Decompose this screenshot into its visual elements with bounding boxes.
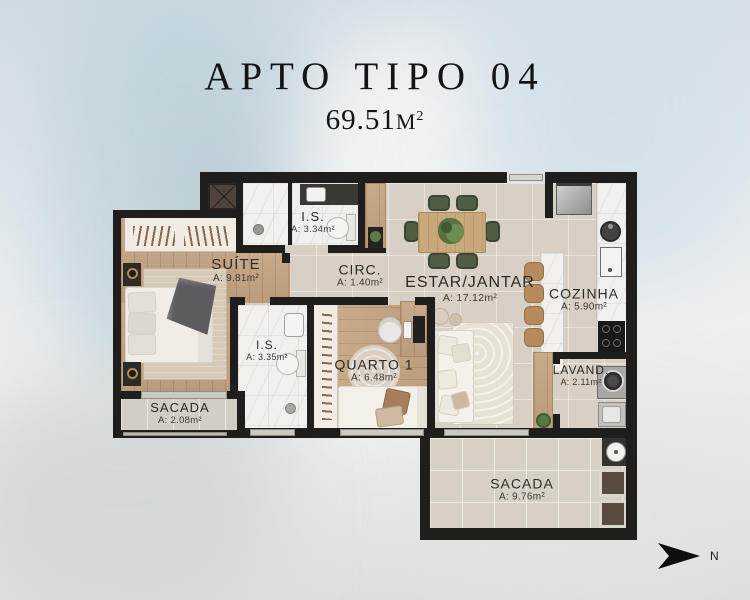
entry-door <box>509 174 543 181</box>
room-area: A: 5.90m² <box>549 302 619 313</box>
wall <box>200 172 507 183</box>
room-area: A: 2.08m² <box>150 415 209 426</box>
north-label: N <box>710 549 719 563</box>
kitchen-faucet-icon <box>608 224 613 229</box>
page: APTO TIPO 04 69.51M2 <box>0 0 750 600</box>
area-value: 69.51 <box>326 104 396 136</box>
room-area: A: 2.11m² <box>553 377 610 387</box>
room-name: I.S. <box>291 209 335 224</box>
wall <box>420 428 430 540</box>
wall <box>282 253 290 263</box>
monitor-icon <box>413 316 425 343</box>
room-area: A: 6.48m² <box>334 373 413 384</box>
fridge-icon <box>556 183 592 215</box>
room-name: COZINHA <box>549 286 619 302</box>
room-name: ESTAR/JANTAR <box>405 274 535 292</box>
plant-icon <box>370 231 381 242</box>
wall <box>553 352 626 359</box>
label-lavand: LAVAND. A: 2.11m² <box>553 363 610 387</box>
area-title: 69.51M2 <box>0 104 750 137</box>
bbq-drain-icon <box>614 450 618 454</box>
wall <box>328 245 365 253</box>
window-is2 <box>250 429 295 436</box>
wardrobe-hangers-icon <box>322 312 332 420</box>
pouf <box>449 313 462 326</box>
suite-lamp-icon <box>127 268 138 279</box>
suite-lamp-icon <box>127 368 138 379</box>
window-sacada-rail <box>123 432 227 436</box>
quarto-pillow <box>375 405 404 428</box>
sofa-pillow <box>451 343 472 364</box>
label-quarto1: QUARTO 1 A: 6.48m² <box>334 357 413 384</box>
suite-pillow <box>127 291 156 313</box>
plant-icon <box>536 413 551 428</box>
oven-knob-icon <box>608 268 612 272</box>
label-sacada-1: SACADA A: 2.08m² <box>150 400 209 426</box>
room-area: A: 9.76m² <box>490 492 554 503</box>
dining-chair <box>456 253 478 269</box>
wall <box>363 248 386 253</box>
room-name: I.S. <box>246 338 288 352</box>
label-is2: I.S. A: 3.35m² <box>246 338 288 362</box>
wall <box>626 172 637 540</box>
island-stool <box>524 306 544 325</box>
wall <box>427 297 435 428</box>
window-suite-sacada <box>141 391 227 399</box>
room-name: QUARTO 1 <box>334 357 413 373</box>
window-quarto <box>340 429 424 436</box>
floor-is1-shower <box>243 183 288 245</box>
dining-chair <box>485 221 500 242</box>
area-unit: M <box>396 109 417 134</box>
keyboard-icon <box>403 321 412 339</box>
grill-cabinet <box>599 469 627 497</box>
grill-cabinet <box>599 500 627 528</box>
sliding-door-estar <box>444 429 529 436</box>
wall <box>420 528 637 540</box>
laundry-basin-icon <box>602 406 621 423</box>
room-name: CIRC. <box>337 262 383 278</box>
label-sacada-2: SACADA A: 9.76m² <box>490 476 554 503</box>
shower-head-icon <box>253 224 264 235</box>
wall <box>236 183 243 253</box>
burner-icon <box>613 339 621 347</box>
closet-hangers-icon <box>184 226 228 246</box>
burner-icon <box>602 339 610 347</box>
wall <box>121 391 141 399</box>
dining-chair <box>456 195 478 211</box>
label-is1: I.S. A: 3.34m² <box>291 209 335 235</box>
wall <box>270 297 315 305</box>
suite-pillow <box>128 334 157 356</box>
wall <box>230 297 238 398</box>
room-area: A: 3.34m² <box>291 224 335 235</box>
is1-sink-icon <box>306 187 326 202</box>
wall <box>113 210 121 438</box>
area-sup: 2 <box>416 109 424 124</box>
room-area: A: 1.40m² <box>337 278 383 289</box>
room-area: A: 17.12m² <box>405 292 535 304</box>
room-name: LAVAND. <box>553 363 610 377</box>
desk-chair <box>378 317 402 343</box>
wall <box>237 391 245 438</box>
label-estar: ESTAR/JANTAR A: 17.12m² <box>405 274 535 304</box>
label-suite: SUÍTE A: 9.81m² <box>211 256 260 284</box>
wall <box>545 172 637 183</box>
room-name: SUÍTE <box>211 256 260 273</box>
dining-chair <box>428 253 450 269</box>
page-title: APTO TIPO 04 <box>0 54 750 99</box>
shower-drain-icon <box>285 403 296 414</box>
burner-icon <box>613 325 621 333</box>
wall <box>230 297 245 305</box>
room-name: SACADA <box>490 476 554 492</box>
dining-chair <box>404 221 419 242</box>
label-circ: CIRC. A: 1.40m² <box>337 262 383 289</box>
closet-hangers-icon <box>133 226 175 246</box>
burner-icon <box>602 325 610 333</box>
plant-icon <box>441 222 452 233</box>
wall <box>236 245 285 253</box>
is2-sink-icon <box>284 313 304 337</box>
wall <box>307 305 314 428</box>
wall <box>113 210 240 218</box>
label-cozinha: COZINHA A: 5.90m² <box>549 286 619 313</box>
wall <box>553 414 560 430</box>
north-arrow-icon <box>658 542 700 570</box>
room-name: SACADA <box>150 400 209 415</box>
oven-icon <box>600 247 622 277</box>
wall <box>227 391 237 399</box>
island-stool <box>524 328 544 347</box>
wall <box>315 297 388 305</box>
suite-pillow <box>128 313 157 335</box>
room-area: A: 3.35m² <box>246 352 288 362</box>
room-area: A: 9.81m² <box>211 273 260 284</box>
wall <box>358 172 365 253</box>
wall <box>545 172 553 218</box>
sofa-pillow <box>437 369 458 390</box>
north-indicator: N <box>658 542 719 570</box>
dining-chair <box>428 195 450 211</box>
